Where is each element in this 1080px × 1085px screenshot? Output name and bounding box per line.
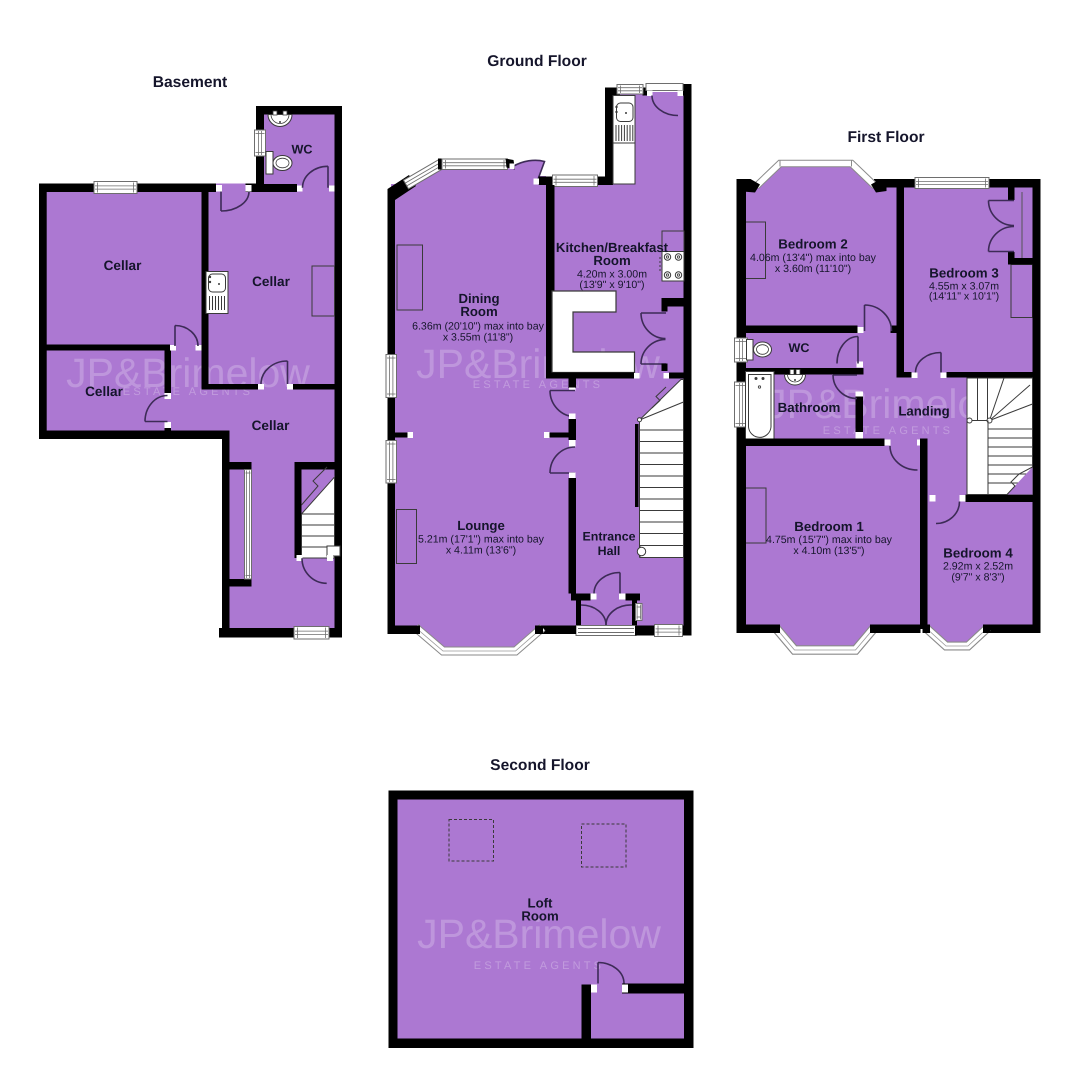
- svg-text:ESTATE AGENTS: ESTATE AGENTS: [473, 379, 603, 391]
- svg-text:Landing: Landing: [898, 404, 949, 419]
- svg-text:Bedroom 4: Bedroom 4: [943, 546, 1013, 561]
- svg-text:Basement: Basement: [153, 74, 228, 91]
- svg-text:(13'9" x 9'10"): (13'9" x 9'10"): [579, 279, 644, 291]
- svg-text:Room: Room: [460, 304, 497, 319]
- svg-text:x 3.60m (11'10"): x 3.60m (11'10"): [775, 263, 851, 275]
- svg-text:Bathroom: Bathroom: [778, 400, 841, 415]
- svg-text:Bedroom 1: Bedroom 1: [794, 519, 864, 534]
- svg-text:Cellar: Cellar: [85, 384, 123, 399]
- svg-text:(9'7" x 8'3"): (9'7" x 8'3"): [951, 572, 1004, 584]
- svg-text:Room: Room: [521, 909, 558, 924]
- svg-text:First Floor: First Floor: [847, 129, 924, 146]
- svg-text:Cellar: Cellar: [252, 418, 290, 433]
- svg-text:ESTATE AGENTS: ESTATE AGENTS: [823, 425, 953, 437]
- svg-text:ESTATE AGENTS: ESTATE AGENTS: [474, 960, 604, 972]
- svg-text:Lounge: Lounge: [457, 518, 505, 533]
- svg-text:x 3.55m (11'8"): x 3.55m (11'8"): [443, 332, 513, 344]
- svg-text:Cellar: Cellar: [104, 258, 142, 273]
- svg-text:Hall: Hall: [598, 544, 621, 558]
- svg-text:WC: WC: [789, 341, 810, 355]
- svg-text:(14'11" x 10'1"): (14'11" x 10'1"): [929, 291, 999, 303]
- svg-text:Bedroom 2: Bedroom 2: [778, 237, 847, 252]
- svg-text:Ground Floor: Ground Floor: [487, 53, 587, 70]
- svg-text:x 4.10m (13'5"): x 4.10m (13'5"): [793, 545, 864, 557]
- svg-text:Second Floor: Second Floor: [490, 757, 590, 774]
- svg-text:Bedroom 3: Bedroom 3: [929, 266, 998, 281]
- svg-text:WC: WC: [292, 143, 313, 157]
- svg-text:Entrance: Entrance: [582, 530, 635, 544]
- svg-text:Cellar: Cellar: [252, 274, 290, 289]
- svg-text:Room: Room: [593, 253, 630, 268]
- svg-text:x 4.11m (13'6"): x 4.11m (13'6"): [446, 545, 516, 557]
